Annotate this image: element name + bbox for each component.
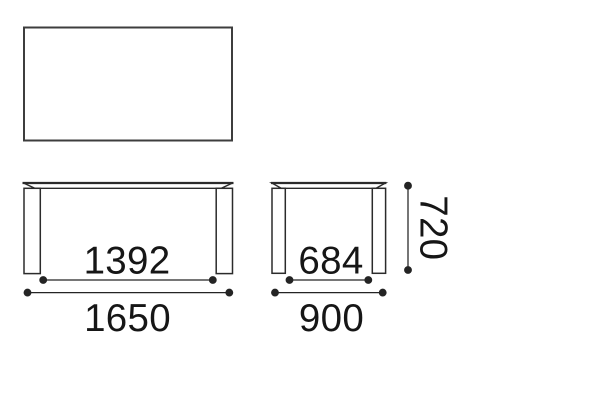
front-total-width-dimline	[24, 289, 232, 296]
dimension-endpoint-dot	[405, 267, 412, 274]
side-right-leg	[372, 188, 385, 273]
dimension-endpoint-dot	[379, 289, 386, 296]
dimension-endpoint-dot	[272, 289, 279, 296]
side-total-depth-label: 900	[299, 297, 364, 340]
height-dimline	[405, 182, 412, 273]
dimension-endpoint-dot	[24, 289, 31, 296]
dimension-endpoint-dot	[365, 277, 372, 284]
top-view	[24, 28, 232, 141]
side-total-depth-dimline	[272, 289, 386, 296]
dimension-endpoint-dot	[226, 289, 233, 296]
front-right-leg	[216, 188, 232, 273]
front-inner-width-label: 1392	[84, 240, 171, 283]
dimension-endpoint-dot	[405, 182, 412, 189]
dimension-endpoint-dot	[286, 277, 293, 284]
dimension-endpoint-dot	[210, 277, 217, 284]
side-left-leg	[272, 188, 285, 273]
top-view-tabletop-outline	[24, 28, 232, 141]
dimension-drawing-canvas: 1392 1650 684 900 720	[0, 0, 600, 400]
side-inner-depth-label: 684	[298, 240, 363, 283]
dimension-labels: 1392 1650 684 900 720	[84, 195, 455, 340]
dimension-endpoint-dot	[40, 277, 47, 284]
table-dimension-drawing: 1392 1650 684 900 720	[0, 0, 600, 400]
height-label: 720	[412, 195, 455, 260]
front-left-leg	[24, 188, 40, 273]
front-total-width-label: 1650	[84, 297, 171, 340]
